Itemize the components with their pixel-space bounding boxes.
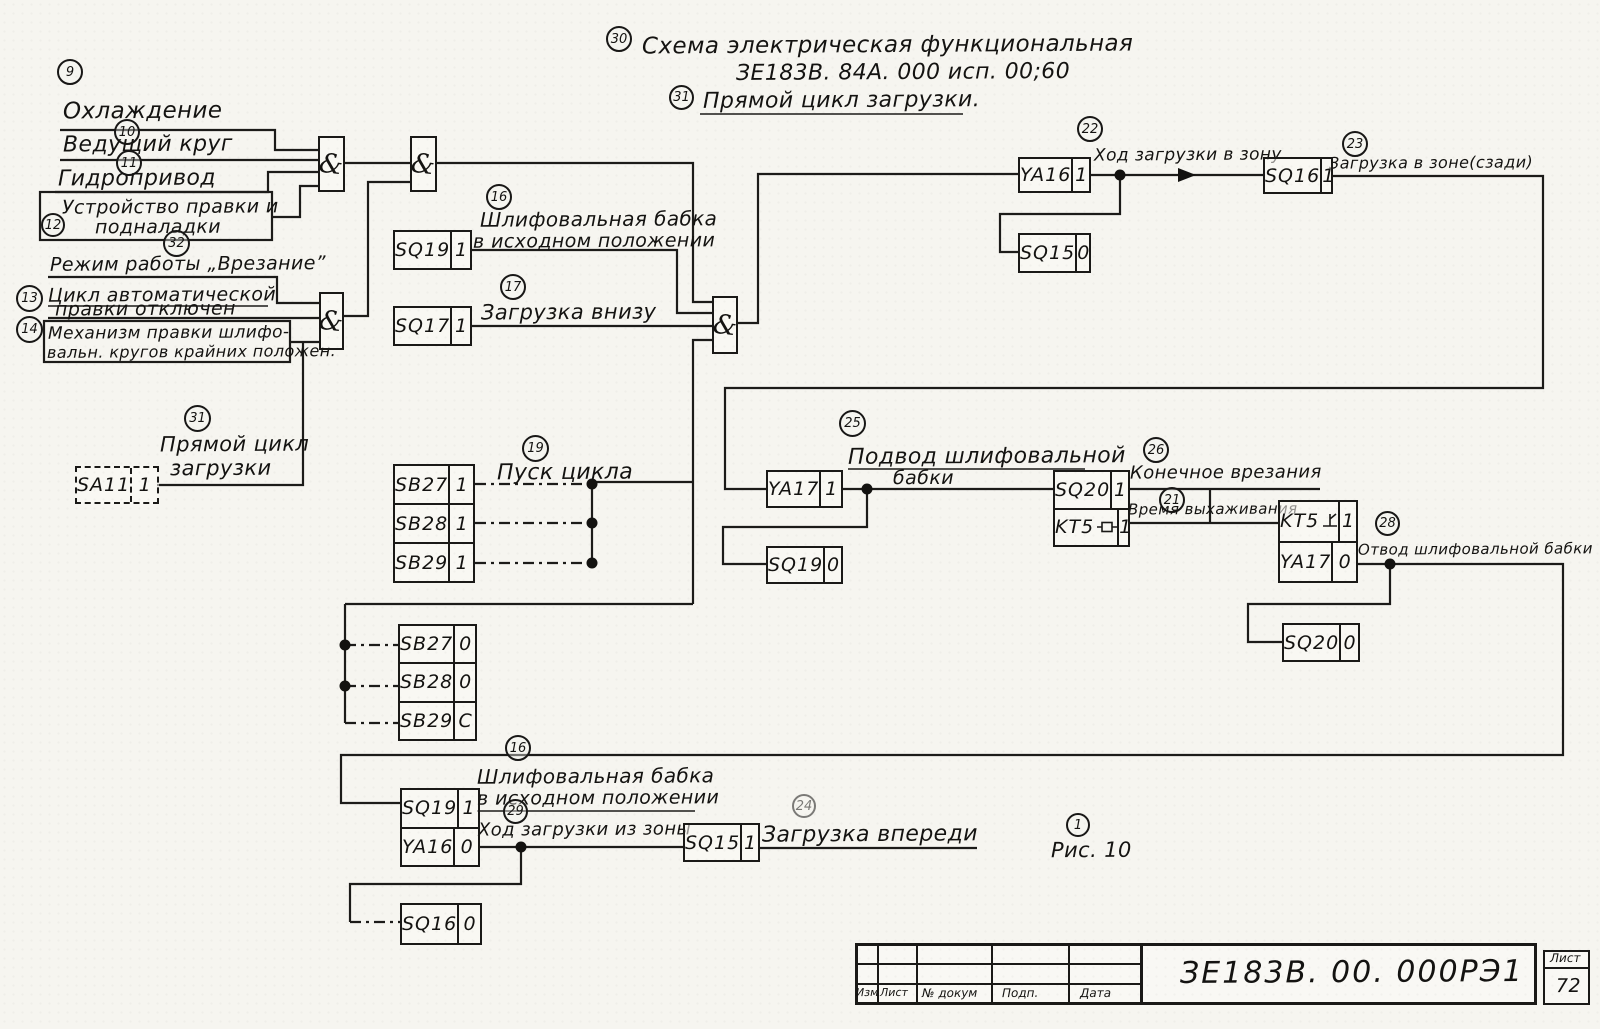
- label-mode-plunge: Режим работы „Врезание”: [50, 252, 326, 276]
- element-state: 0: [455, 664, 475, 700]
- callout-30: 30: [606, 26, 632, 52]
- table-row: YA16 0: [402, 827, 478, 866]
- table-row: SB27 0: [400, 626, 475, 662]
- titleblock-col-izm: Изм: [856, 986, 878, 999]
- table-row: SB28 0: [400, 662, 475, 700]
- label-wheelhead-advance-2: бабки: [893, 467, 954, 489]
- element-label: SB27: [400, 626, 455, 662]
- label-direct-cycle-2: загрузки: [170, 456, 272, 481]
- element-state: 1: [450, 466, 473, 503]
- element-label: SQ19: [395, 232, 452, 268]
- element-state: 1: [742, 825, 758, 860]
- element-state: 1: [1073, 159, 1089, 191]
- callout-number: 25: [844, 416, 861, 431]
- callout-24: 24: [792, 794, 816, 818]
- label-wheelhead-home-top-2: в исходном положении: [473, 229, 715, 252]
- callout-14: 14: [16, 316, 43, 343]
- table-row: KT5 1: [1280, 502, 1356, 541]
- element-state: 0: [825, 548, 841, 582]
- element-state: 1: [1112, 472, 1128, 508]
- label-load-below: Загрузка внизу: [481, 299, 657, 324]
- callout-number: 30: [611, 32, 628, 47]
- table-row: SB29 1: [395, 542, 473, 581]
- table-row: KT5 1: [1055, 508, 1128, 546]
- title-block-line: [1543, 967, 1590, 969]
- callout-number: 14: [21, 322, 38, 337]
- titleblock-col-list: Лист: [880, 986, 908, 999]
- callout-25: 25: [839, 410, 866, 437]
- label-auto-dressing-2: правки отключен: [55, 297, 236, 320]
- callout-31: 31: [184, 405, 211, 432]
- figure-caption: Рис. 10: [1051, 838, 1132, 862]
- callout-number: 26: [1148, 443, 1165, 458]
- element-label: SQ20: [1055, 472, 1112, 508]
- element-label: SA11: [77, 468, 132, 502]
- element-state: 1: [452, 308, 470, 344]
- label-wheelhead-home-top-1: Шлифовальная бабка: [480, 206, 717, 231]
- block-sq19-top: SQ19 1: [393, 230, 472, 270]
- callout-number: 17: [505, 280, 522, 295]
- and-gate-1: &: [318, 136, 345, 192]
- callout-9: 9: [57, 59, 83, 85]
- table-row: SQ20 1: [1055, 472, 1128, 508]
- callout-number: 22: [1082, 122, 1099, 137]
- callout-28: 28: [1375, 511, 1400, 536]
- timer-contact-icon: [1322, 512, 1338, 530]
- label-load-stroke-into-zone: Ход загрузки в зону: [1094, 144, 1282, 165]
- callout-number: 16: [491, 190, 508, 205]
- and-gate-symbol: &: [318, 304, 346, 338]
- callout-number: 23: [1347, 137, 1364, 152]
- sheet-label: Лист: [1550, 951, 1581, 965]
- table-row: YA17 0: [1280, 541, 1356, 582]
- label-hydraulic-drive: Гидропривод: [58, 166, 216, 192]
- element-label: KT5: [1280, 502, 1340, 541]
- label-dressing-mechanism-1: Механизм правки шлифо-: [48, 322, 290, 343]
- element-state: 1: [1322, 159, 1334, 192]
- callout-number: 16: [510, 741, 527, 756]
- titleblock-col-podp: Подп.: [1002, 986, 1038, 1000]
- block-sq15-bottom: SQ15 1: [683, 823, 760, 862]
- element-label: SB29: [395, 544, 450, 581]
- label-cooling: Охлаждение: [63, 98, 223, 125]
- element-state: 0: [459, 905, 480, 943]
- element-label: SB28: [395, 505, 450, 542]
- callout-number: 12: [45, 218, 62, 233]
- table-row: SB29 C: [400, 701, 475, 739]
- element-state: 1: [1119, 510, 1131, 546]
- title-line2: ЗЕ183В. 84А. 000 исп. 00;60: [736, 59, 1070, 86]
- callout-17: 17: [500, 274, 526, 300]
- title-block-line: [1068, 943, 1070, 1005]
- element-label: SQ16: [1265, 159, 1322, 192]
- element-label: SQ15: [685, 825, 742, 860]
- and-gate-symbol: &: [410, 147, 438, 181]
- block-sq19-echo: SQ19 0: [766, 546, 843, 584]
- element-state: 0: [455, 626, 475, 662]
- label-sparkout-time: Время выхаживания: [1128, 499, 1298, 518]
- block-sq20-released: SQ20 0: [1282, 623, 1360, 662]
- element-state: 1: [450, 505, 473, 542]
- callout-1: 1: [1066, 813, 1090, 837]
- callout-19: 19: [522, 435, 549, 462]
- callout-number: 24: [796, 799, 813, 814]
- callout-13: 13: [16, 285, 43, 312]
- element-label: SB29: [400, 703, 455, 739]
- and-gate-4: &: [712, 296, 738, 354]
- element-label: SQ15: [1020, 235, 1077, 271]
- element-state: 0: [1077, 235, 1089, 271]
- element-label-text: KT5: [1055, 516, 1094, 538]
- title-line1: Схема электрическая функциональная: [642, 30, 1133, 59]
- callout-31-title: 31: [669, 85, 694, 110]
- element-label: SQ19: [768, 548, 825, 582]
- element-state: 0: [1333, 543, 1356, 582]
- label-wheelhead-retract: Отвод шлифовальной бабки: [1358, 539, 1593, 558]
- label-final-plunge: Конечное врезания: [1130, 461, 1322, 483]
- table-row: SB27 1: [395, 466, 473, 503]
- element-label: KT5: [1055, 510, 1119, 546]
- block-sq20-kt5: SQ20 1 KT5 1: [1053, 470, 1130, 547]
- element-state: 1: [132, 468, 157, 502]
- block-sq16-right: SQ16 1: [1263, 157, 1333, 194]
- callout-16-bottom: 16: [505, 735, 531, 761]
- label-dressing-mechanism-2: вальн. кругов крайних положен.: [47, 341, 336, 362]
- and-gate-3: &: [319, 292, 344, 350]
- label-direct-cycle-1: Прямой цикл: [160, 432, 309, 457]
- element-label-text: KT5: [1280, 510, 1319, 532]
- element-state: C: [455, 703, 475, 739]
- element-state: 1: [1340, 502, 1356, 541]
- and-gate-symbol: &: [318, 147, 346, 181]
- element-label: YA16: [402, 829, 455, 866]
- document-number: ЗЕ183В. 00. 000РЭ1: [1180, 954, 1524, 991]
- and-gate-symbol: &: [711, 308, 739, 342]
- relay-coil-icon: [1097, 521, 1117, 533]
- block-sq17: SQ17 1: [393, 306, 472, 346]
- label-load-in-zone-rear: Загрузка в зоне(сзади): [1329, 152, 1533, 172]
- label-cycle-start: Пуск цикла: [497, 460, 633, 486]
- element-state: 1: [821, 472, 841, 506]
- titleblock-col-dokum: № докум: [922, 986, 977, 1000]
- table-row: SQ19 1: [402, 790, 478, 827]
- label-drive-wheel: Ведущий круг: [63, 131, 233, 157]
- label-dressing-device-2: подналадки: [95, 216, 221, 239]
- block-kt5-ya17: KT5 1 YA17 0: [1278, 500, 1358, 583]
- label-load-in-front: Загрузка впереди: [762, 821, 978, 847]
- element-state: 1: [450, 544, 473, 581]
- label-wheelhead-advance-1: Подвод шлифовальной: [848, 443, 1126, 470]
- title-block-line: [916, 943, 918, 1005]
- table-row: SB28 1: [395, 503, 473, 542]
- callout-number: 19: [527, 441, 544, 456]
- block-sa11: SA11 1: [75, 466, 159, 504]
- block-ya17: YA17 1: [766, 470, 843, 508]
- callout-number: 31: [189, 411, 206, 426]
- element-state: 1: [459, 790, 478, 827]
- block-sq15-right: SQ15 0: [1018, 233, 1091, 273]
- element-label: SQ16: [402, 905, 459, 943]
- element-label: SQ20: [1284, 625, 1341, 660]
- callout-number: 13: [21, 291, 38, 306]
- title-block-line: [855, 963, 1140, 965]
- label-load-stroke-out-of-zone: Ход загрузки из зоны: [478, 818, 691, 840]
- callout-16-top: 16: [486, 184, 512, 210]
- flow-arrow-icon: [1178, 168, 1196, 182]
- block-sq19-ya16: SQ19 1 YA16 0: [400, 788, 480, 867]
- callout-number: 29: [507, 804, 524, 819]
- sheet-number: 72: [1556, 975, 1581, 997]
- block-sb-stack-pressed: SB27 1 SB28 1 SB29 1: [393, 464, 475, 583]
- callout-number: 9: [66, 65, 74, 80]
- element-label: YA17: [768, 472, 821, 506]
- title-line3: Прямой цикл загрузки.: [703, 87, 980, 114]
- callout-22: 22: [1077, 116, 1103, 142]
- block-ya16: YA16 1: [1018, 157, 1091, 193]
- callout-number: 28: [1379, 516, 1396, 531]
- element-label: YA16: [1020, 159, 1073, 191]
- callout-number: 32: [168, 236, 185, 251]
- element-label: SQ17: [395, 308, 452, 344]
- element-state: 0: [455, 829, 478, 866]
- callout-26: 26: [1143, 437, 1169, 463]
- element-label: SB27: [395, 466, 450, 503]
- title-block-line: [855, 983, 1140, 985]
- callout-number: 1: [1074, 818, 1082, 833]
- element-state: 1: [452, 232, 470, 268]
- and-gate-2: &: [410, 136, 437, 192]
- callout-number: 31: [673, 90, 690, 105]
- block-sq16-bottom: SQ16 0: [400, 903, 482, 945]
- scanned-schematic-sheet: 30 Схема электрическая функциональная ЗЕ…: [0, 0, 1600, 1029]
- label-wheelhead-home-bot-1: Шлифовальная бабка: [477, 763, 714, 788]
- block-sb-stack-released: SB27 0 SB28 0 SB29 C: [398, 624, 477, 741]
- element-label: SB28: [400, 664, 455, 700]
- titleblock-col-data: Дата: [1080, 986, 1111, 1000]
- element-label: YA17: [1280, 543, 1333, 582]
- element-label: SQ19: [402, 790, 459, 827]
- element-state: 0: [1341, 625, 1358, 660]
- title-block-line: [991, 943, 993, 1005]
- title-block-line: [1140, 943, 1143, 1005]
